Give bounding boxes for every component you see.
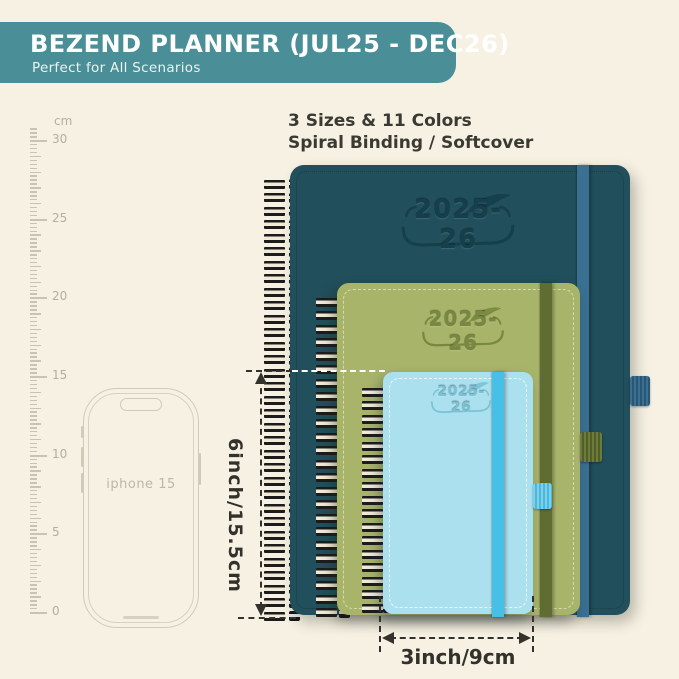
- arrow-right-icon: [519, 632, 531, 644]
- iphone-power-button: [199, 453, 202, 485]
- feature-line-binding: Spiral Binding / Softcover: [288, 132, 533, 154]
- width-dimension-label: 3inch/9cm: [388, 645, 528, 669]
- page-title: BEZEND PLANNER (JUL25 - DEC26): [30, 30, 510, 58]
- page-subtitle: Perfect for All Scenarios: [32, 60, 201, 76]
- feature-line-sizes: 3 Sizes & 11 Colors: [288, 110, 533, 132]
- iphone-label: iphone 15: [84, 477, 198, 492]
- arrow-up-icon: [255, 372, 267, 384]
- planner-medium-year: 2025-26: [418, 307, 508, 355]
- width-arrow-line: [390, 637, 523, 639]
- planner-medium-year-emboss: 2025-26: [418, 306, 508, 349]
- ruler-unit-label: cm: [54, 114, 72, 128]
- planner-small-pen-loop: [533, 483, 552, 509]
- iphone-volume-down-button: [81, 473, 84, 493]
- feature-text: 3 Sizes & 11 Colors Spiral Binding / Sof…: [288, 110, 533, 154]
- width-extension-line-right: [532, 596, 534, 652]
- iphone-volume-up-button: [81, 447, 84, 467]
- planner-large-year-emboss: 2025-26: [396, 192, 520, 250]
- iphone-dynamic-island-icon: [120, 398, 162, 411]
- iphone-home-bar: [123, 616, 159, 619]
- header-banner: BEZEND PLANNER (JUL25 - DEC26) Perfect f…: [0, 22, 456, 83]
- width-extension-line-left: [379, 596, 381, 652]
- planner-small-year: 2025-26: [428, 384, 494, 416]
- arrow-down-icon: [255, 604, 267, 616]
- planner-large-pen-loop: [630, 376, 650, 406]
- height-extension-line-top: [246, 370, 292, 372]
- height-dimension-label: 6inch/15.5cm: [224, 438, 246, 593]
- height-arrow-line: [260, 378, 262, 608]
- iphone-mute-button: [81, 426, 84, 438]
- planner-small-year-emboss: 2025-26: [428, 381, 494, 415]
- planner-large-year: 2025-26: [396, 195, 520, 255]
- arrow-left-icon: [382, 632, 394, 644]
- planner-medium-pen-loop: [580, 432, 602, 462]
- iphone-outline: iphone 15: [83, 388, 199, 628]
- height-extension-line-bottom: [238, 617, 296, 619]
- product-infographic: BEZEND PLANNER (JUL25 - DEC26) Perfect f…: [0, 0, 679, 679]
- height-extension-line-top-white: [292, 370, 385, 372]
- planner-small: 2025-26: [362, 372, 556, 617]
- iphone-screen: [88, 393, 194, 623]
